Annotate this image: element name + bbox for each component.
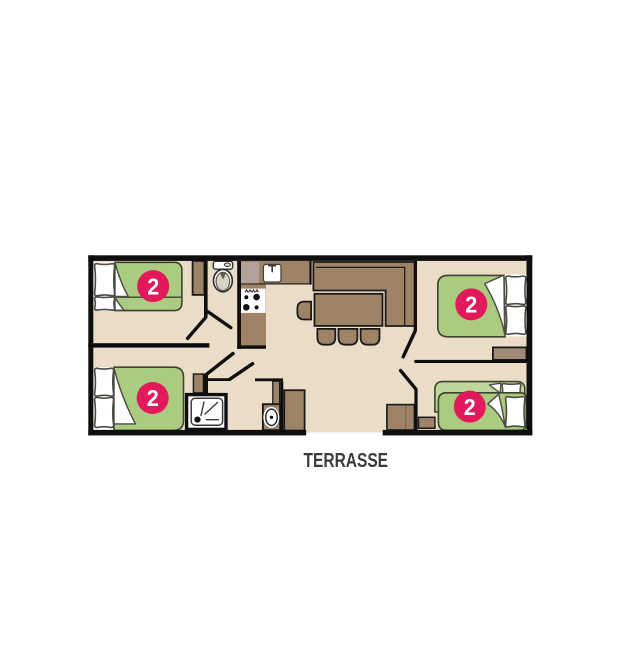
svg-text:TERRASSE: TERRASSE [304,450,389,472]
svg-text:2: 2 [147,273,159,299]
svg-text:2: 2 [465,292,477,318]
svg-text:2: 2 [147,385,159,411]
svg-text:2: 2 [464,394,476,420]
